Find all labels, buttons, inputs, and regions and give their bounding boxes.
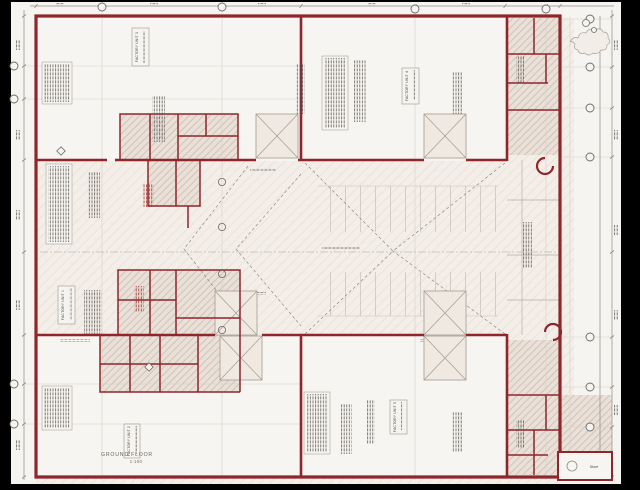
grid-bubble-top	[542, 5, 550, 13]
floor-plan-canvas: Store	[0, 0, 640, 490]
grid-bubble-left	[10, 62, 18, 70]
svg-text:FACTORY UNIT 1: FACTORY UNIT 1	[61, 290, 65, 320]
unit-4-label: FACTORY UNIT 4	[402, 68, 419, 104]
grid-bubble-right	[586, 383, 594, 391]
svg-text:FACTORY UNIT 3: FACTORY UNIT 3	[135, 32, 139, 62]
grid-bubble-left	[10, 95, 18, 103]
grid-bubble-right	[586, 63, 594, 71]
svg-text:FACTORY UNIT 5: FACTORY UNIT 5	[393, 402, 397, 432]
grid-bubble-left	[10, 420, 18, 428]
architectural-drawing: Store	[0, 0, 640, 490]
grid-bubble-right	[586, 423, 594, 431]
grid-bubble-right	[586, 104, 594, 112]
unit-3-label: FACTORY UNIT 3	[132, 28, 149, 66]
floor-title-text: GROUND FLOOR	[101, 452, 153, 458]
grid-bubble-top	[218, 3, 226, 11]
store-room-label: Store	[590, 465, 599, 469]
grid-bubble-right	[586, 153, 594, 161]
grid-bubble-top	[411, 5, 419, 13]
unit-5-label: FACTORY UNIT 5	[390, 400, 407, 434]
grid-bubble-left	[10, 380, 18, 388]
store-room: Store	[558, 452, 612, 480]
grid-bubble-right	[586, 333, 594, 341]
svg-text:FACTORY UNIT 4: FACTORY UNIT 4	[405, 71, 409, 101]
unit-1-label: FACTORY UNIT 1	[58, 286, 75, 324]
floor-scale-text: 1:100	[130, 459, 143, 464]
cloud-reference-bubble	[583, 20, 590, 27]
grid-bubble-top	[98, 3, 106, 11]
cloud-reference-bubble	[592, 28, 597, 33]
